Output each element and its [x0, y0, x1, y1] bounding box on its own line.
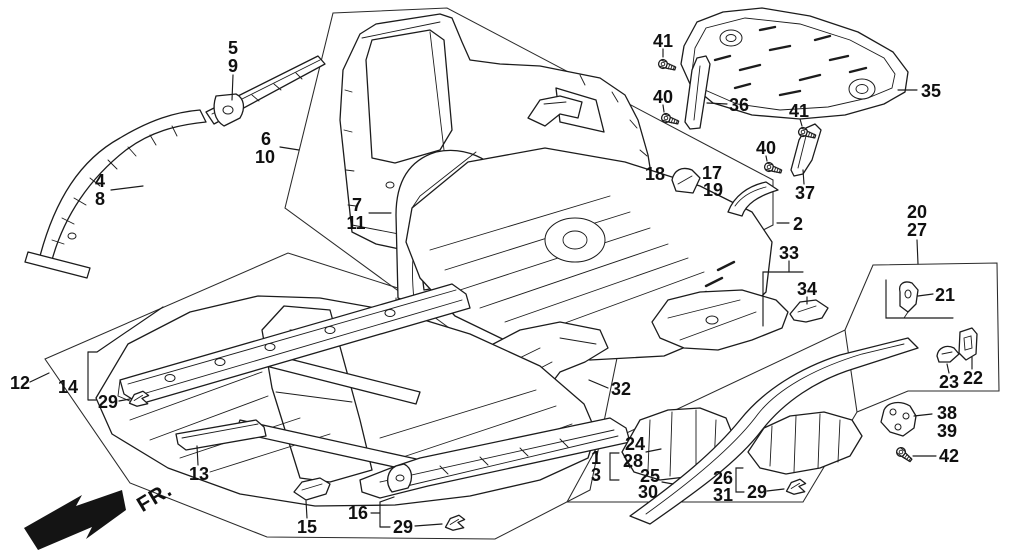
callout-22: 22	[963, 368, 983, 388]
bolt-42-icon	[895, 446, 914, 464]
bolt-41a-icon	[657, 58, 676, 72]
callout-19: 19	[703, 180, 723, 200]
front-pillar-inner-part	[25, 110, 206, 278]
callout-37: 37	[795, 183, 815, 203]
callout-7: 7	[352, 195, 362, 215]
callout-40b: 40	[756, 138, 776, 158]
callout-30: 30	[638, 482, 658, 502]
clip-23-part	[937, 346, 959, 362]
callout-16: 16	[348, 503, 368, 523]
callout-40a: 40	[653, 87, 673, 107]
callout-34: 34	[797, 279, 817, 299]
callout-32: 32	[611, 379, 631, 399]
callout-20: 20	[907, 202, 927, 222]
callout-13: 13	[189, 464, 209, 484]
callout-6: 6	[261, 129, 271, 149]
callout-23: 23	[939, 372, 959, 392]
bolt-40a-icon	[660, 112, 679, 126]
callout-5: 5	[228, 38, 238, 58]
roof-side-rail-part	[206, 56, 325, 126]
parts-diagram-page: 5948610711121429131516294140363541403718…	[0, 0, 1010, 554]
leader-line	[280, 147, 299, 150]
callout-33: 33	[779, 243, 799, 263]
fr-direction-label: FR.	[133, 478, 176, 517]
leader-line	[917, 240, 918, 264]
leader-line	[30, 373, 49, 382]
leader-line	[736, 468, 744, 492]
leader-line	[415, 524, 442, 526]
callout-27: 27	[907, 220, 927, 240]
callout-36: 36	[729, 95, 749, 115]
bracket-38-39-part	[881, 403, 916, 436]
leader-line	[111, 186, 143, 190]
rear-crossmember-part	[652, 290, 788, 350]
callout-2: 2	[793, 214, 803, 234]
leader-line	[610, 453, 619, 480]
callout-35: 35	[921, 81, 941, 101]
bolt-40b-icon	[763, 161, 782, 175]
clip-29-right-part	[785, 479, 807, 496]
callout-21: 21	[935, 285, 955, 305]
grommet-22-part	[959, 328, 977, 360]
callout-18: 18	[645, 164, 665, 184]
leader-line	[767, 489, 784, 491]
clip-21-part	[900, 282, 918, 318]
callout-29a: 29	[98, 392, 118, 412]
clip-29-mid-part	[444, 515, 466, 532]
leader-line	[918, 294, 933, 296]
exploded-parts-diagram: 5948610711121429131516294140363541403718…	[0, 0, 1010, 554]
crossmember-bracket-part	[790, 300, 828, 322]
callout-38: 38	[937, 403, 957, 423]
leader-line	[662, 482, 673, 484]
callout-8: 8	[95, 189, 105, 209]
callout-15: 15	[297, 517, 317, 537]
callout-11: 11	[346, 213, 365, 233]
callout-39: 39	[937, 421, 957, 441]
callout-41a: 41	[653, 31, 673, 51]
parts-layer	[25, 8, 977, 524]
callout-12: 12	[10, 373, 30, 393]
callout-10: 10	[255, 147, 275, 167]
callout-4: 4	[95, 171, 105, 191]
callout-41b: 41	[789, 101, 809, 121]
leader-line	[589, 380, 608, 388]
callout-14: 14	[58, 377, 78, 397]
fr-direction-indicator: FR.	[24, 478, 176, 550]
callout-9: 9	[228, 56, 238, 76]
callout-29b: 29	[393, 517, 413, 537]
leader-line	[914, 414, 932, 416]
floor-bracket-17-19-part	[728, 182, 778, 216]
fr-arrow-icon	[24, 490, 126, 550]
callout-31: 31	[713, 485, 733, 505]
callout-3: 3	[591, 465, 601, 485]
callout-29c: 29	[747, 482, 767, 502]
callout-42: 42	[939, 446, 959, 466]
